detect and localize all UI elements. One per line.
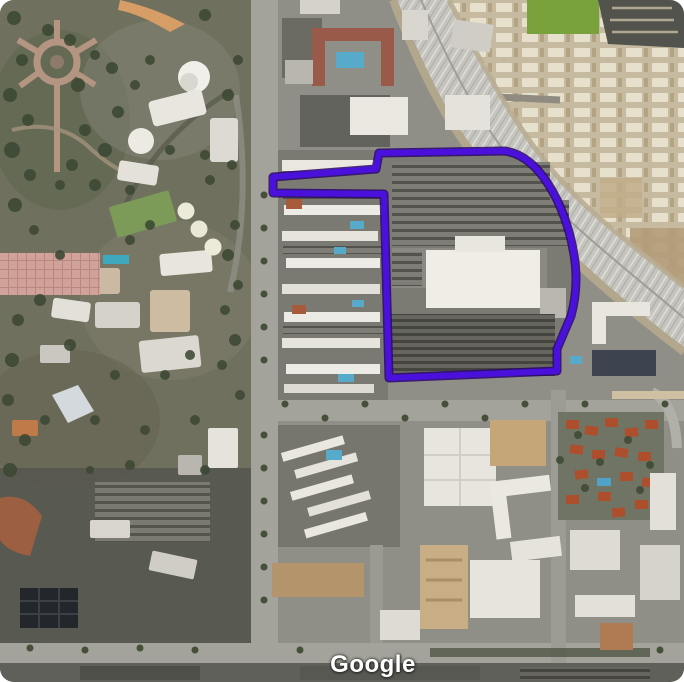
theme-park-area — [0, 0, 260, 648]
map-viewport[interactable]: Google — [0, 0, 684, 682]
large-retail-building — [426, 250, 540, 308]
google-watermark: Google — [308, 651, 438, 679]
dirt-lot — [272, 563, 364, 597]
parking-structure-roof — [0, 253, 100, 295]
red-roof-complex — [556, 412, 664, 520]
construction-building — [420, 545, 468, 629]
satellite-imagery — [0, 0, 684, 682]
lawn-field — [527, 0, 599, 34]
dirt-lot-2 — [490, 420, 546, 466]
